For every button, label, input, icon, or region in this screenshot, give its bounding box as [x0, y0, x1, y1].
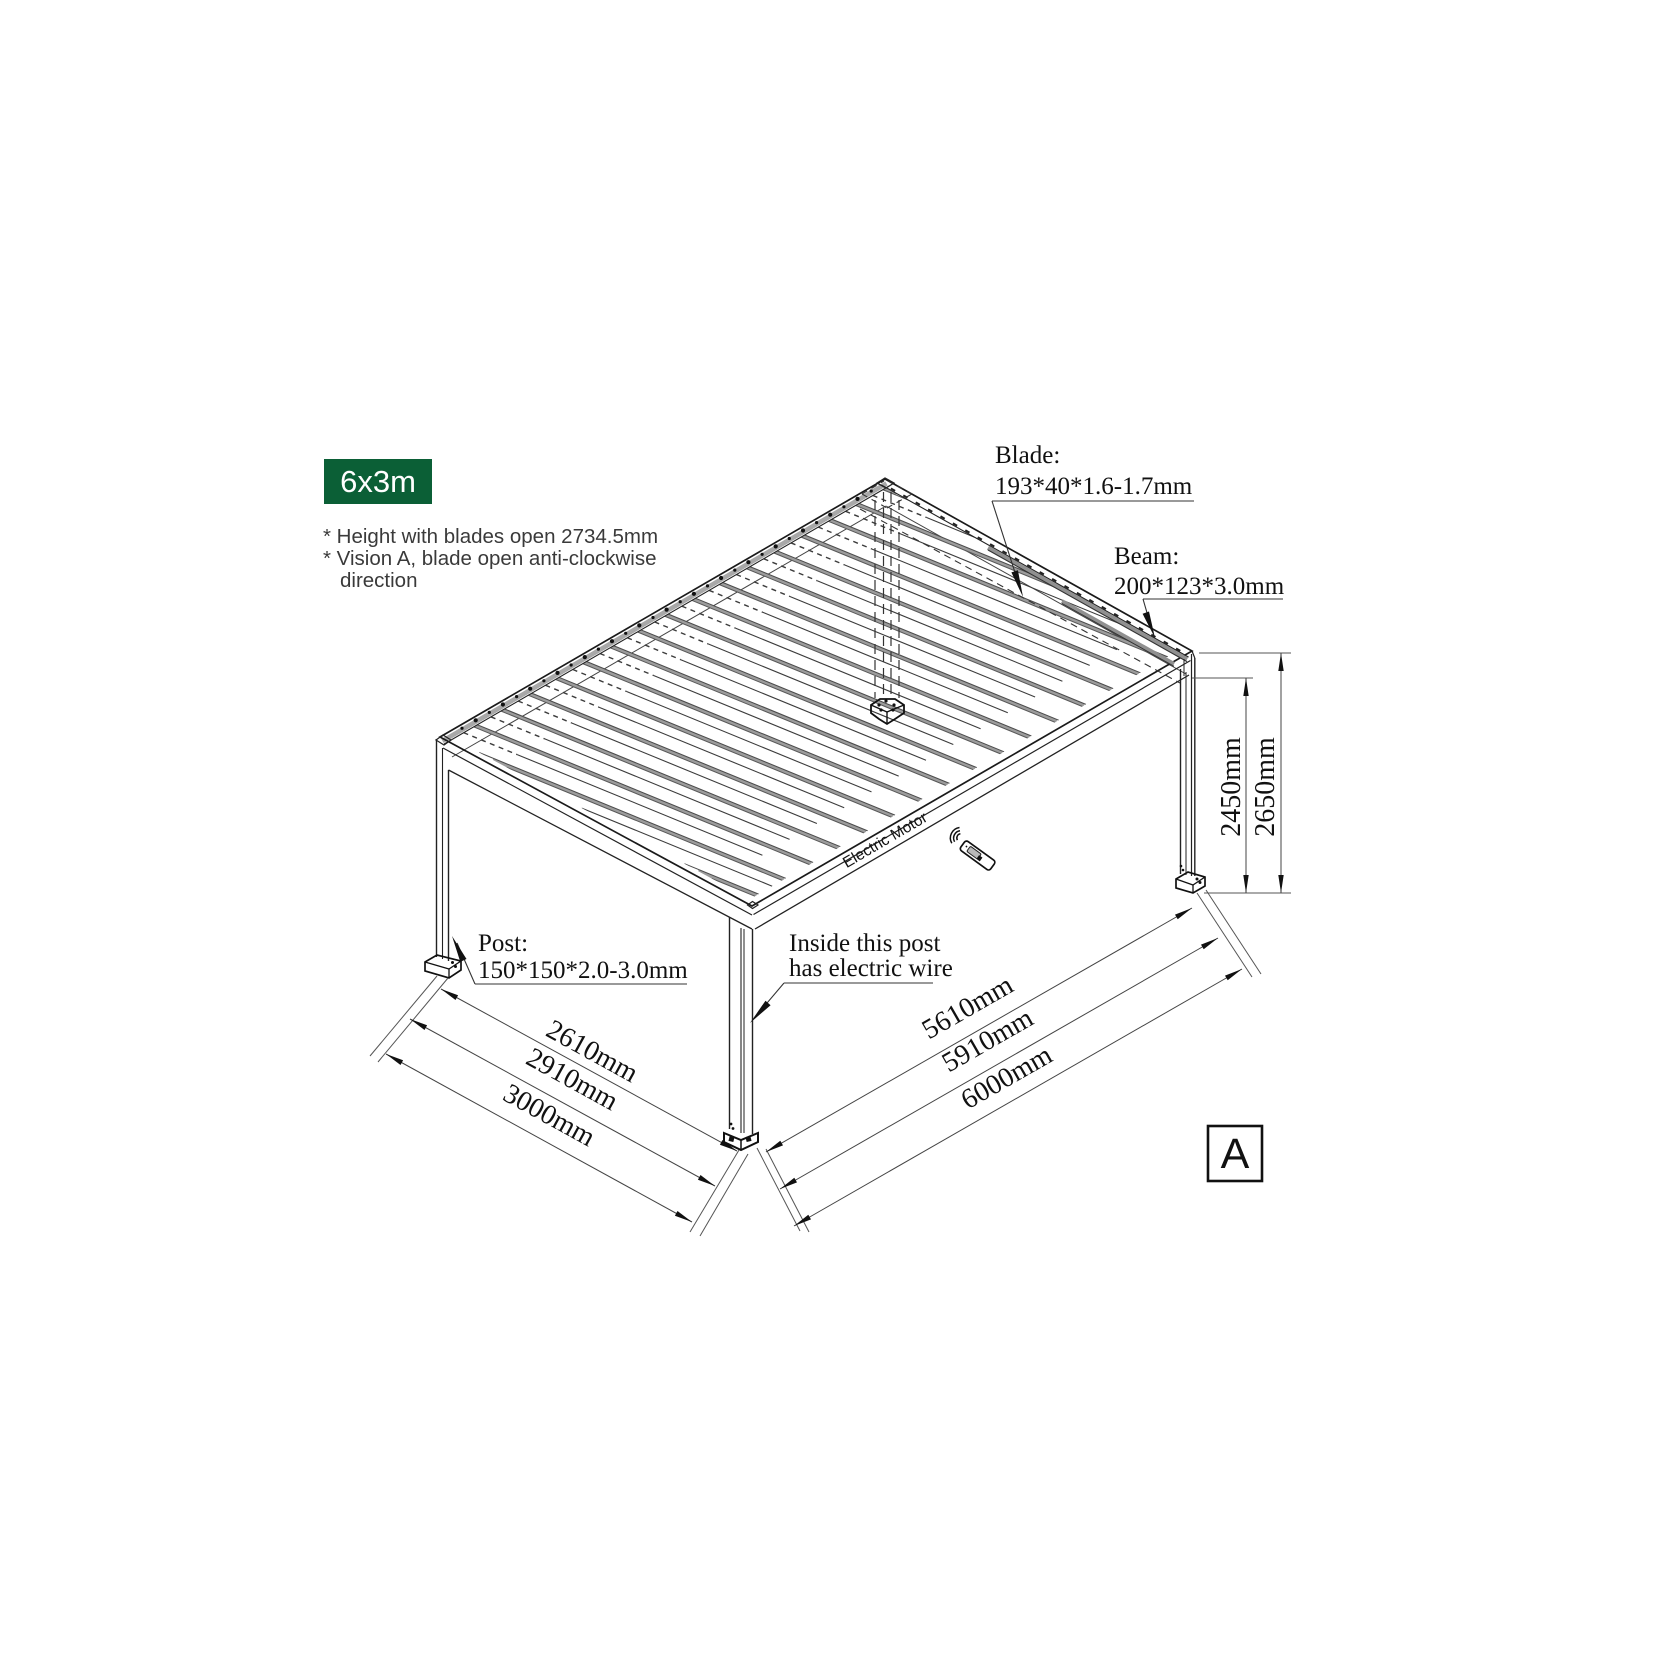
svg-text:* Height with blades open 2734: * Height with blades open 2734.5mm [323, 525, 658, 548]
svg-text:2450mm: 2450mm [1216, 737, 1247, 837]
svg-text:A: A [1221, 1130, 1250, 1178]
svg-text:6x3m: 6x3m [340, 464, 416, 499]
svg-text:Inside this post: Inside this post [789, 930, 940, 957]
svg-text:Beam:: Beam: [1114, 543, 1179, 570]
svg-text:150*150*2.0-3.0mm: 150*150*2.0-3.0mm [478, 957, 688, 984]
svg-text:Blade:: Blade: [995, 442, 1060, 469]
svg-text:2650mm: 2650mm [1250, 737, 1281, 837]
svg-text:direction: direction [340, 569, 418, 592]
svg-text:193*40*1.6-1.7mm: 193*40*1.6-1.7mm [995, 473, 1193, 500]
svg-text:Post:: Post: [478, 930, 528, 957]
svg-text:has electric wire: has electric wire [789, 955, 953, 982]
svg-text:* Vision A, blade open anti-cl: * Vision A, blade open anti-clockwise [323, 547, 657, 570]
svg-text:200*123*3.0mm: 200*123*3.0mm [1114, 573, 1285, 600]
